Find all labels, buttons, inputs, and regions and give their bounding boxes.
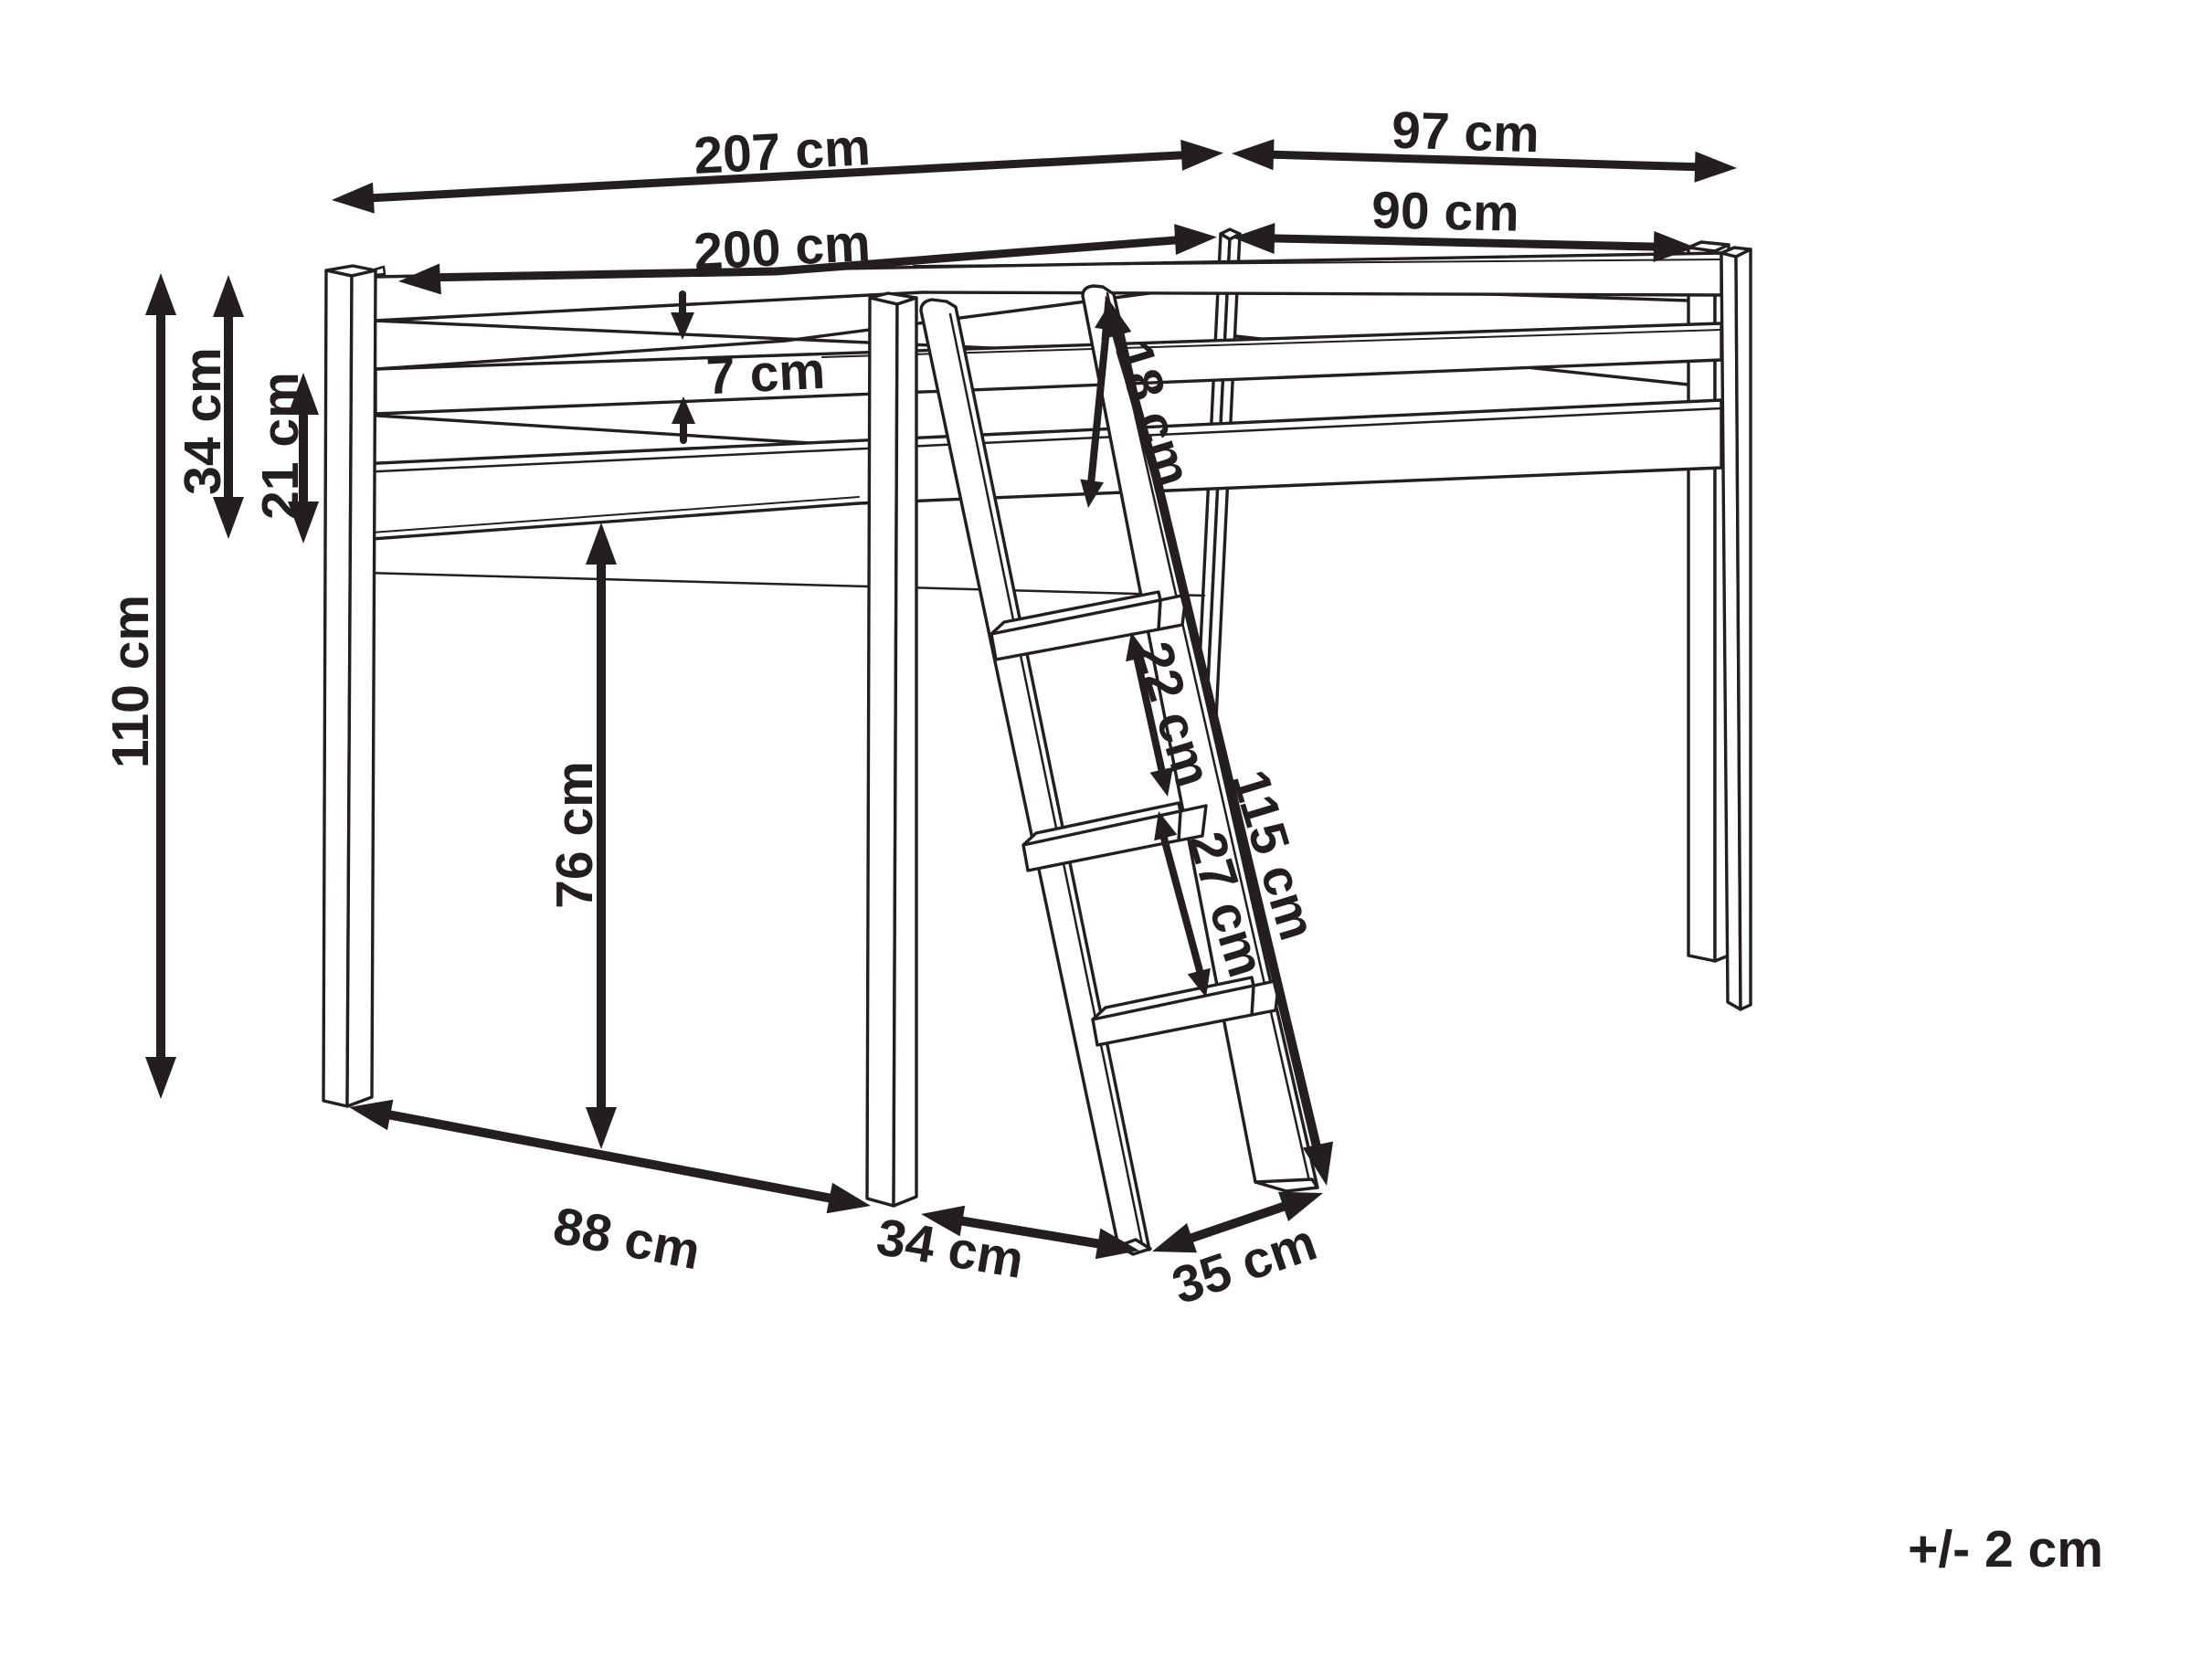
svg-text:34 cm: 34 cm: [174, 347, 232, 495]
svg-text:97 cm: 97 cm: [1391, 101, 1540, 164]
svg-text:200 cm: 200 cm: [693, 214, 873, 281]
svg-text:76 cm: 76 cm: [545, 761, 604, 909]
svg-text:90 cm: 90 cm: [1371, 181, 1519, 243]
svg-text:7 cm: 7 cm: [704, 342, 826, 407]
svg-text:207 cm: 207 cm: [693, 118, 872, 185]
svg-text:110 cm: 110 cm: [101, 595, 160, 768]
svg-text:21 cm: 21 cm: [251, 372, 310, 520]
svg-text:+/- 2 cm: +/- 2 cm: [1908, 1520, 2103, 1579]
